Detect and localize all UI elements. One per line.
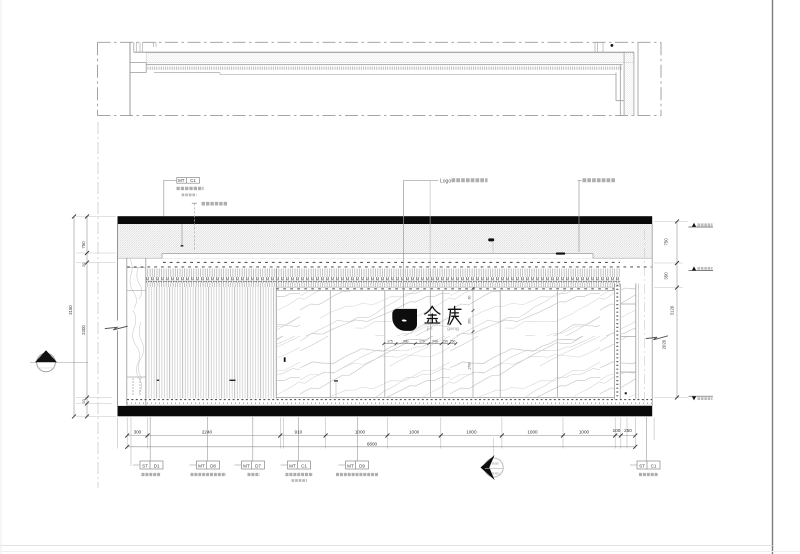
svg-text:MT: MT [347,463,354,468]
svg-text:C1: C1 [651,463,657,468]
svg-text:350: 350 [467,318,471,324]
svg-text:C1: C1 [301,463,307,468]
svg-text:250: 250 [624,428,632,433]
svg-text:2240: 2240 [202,430,213,435]
svg-text:6800: 6800 [367,441,378,446]
svg-text:350: 350 [664,272,669,280]
svg-text:90: 90 [467,296,471,300]
svg-text:175: 175 [387,340,393,344]
svg-text:D8: D8 [210,463,216,468]
svg-text:1000: 1000 [355,430,366,435]
svg-text:300: 300 [134,430,142,435]
svg-text:1000: 1000 [579,430,590,435]
svg-text:910: 910 [294,430,302,435]
svg-text:3120: 3120 [670,305,675,315]
svg-text:ST: ST [639,463,645,468]
svg-text:2020: 2020 [662,339,667,349]
svg-text:20: 20 [81,262,86,267]
svg-text:D1: D1 [154,463,160,468]
svg-text:3150: 3150 [68,305,73,315]
svg-text:Logo: Logo [440,178,451,184]
svg-text:MT: MT [243,463,250,468]
svg-text:MT: MT [289,463,296,468]
svg-text:170: 170 [419,340,425,344]
svg-text:150: 150 [442,340,448,344]
svg-text:geng: geng [447,326,459,331]
svg-text:C1: C1 [190,178,196,183]
svg-text:750: 750 [81,241,86,249]
svg-text:100: 100 [613,428,621,433]
svg-text:D9: D9 [359,463,365,468]
svg-text:750: 750 [664,238,669,246]
svg-text:260: 260 [450,340,456,344]
svg-text:1730: 1730 [467,362,471,370]
svg-text:20: 20 [81,398,86,403]
svg-text:240: 240 [432,340,438,344]
svg-text:1000: 1000 [466,430,477,435]
svg-text:jin: jin [426,326,433,331]
svg-text:MT: MT [178,178,185,183]
svg-text:D7: D7 [255,463,261,468]
svg-text:ST: ST [142,463,148,468]
svg-text:390: 390 [403,340,409,344]
svg-text:1000: 1000 [409,430,420,435]
svg-text:1000: 1000 [527,430,538,435]
svg-text:MT: MT [198,463,205,468]
svg-text:2300: 2300 [81,325,86,335]
